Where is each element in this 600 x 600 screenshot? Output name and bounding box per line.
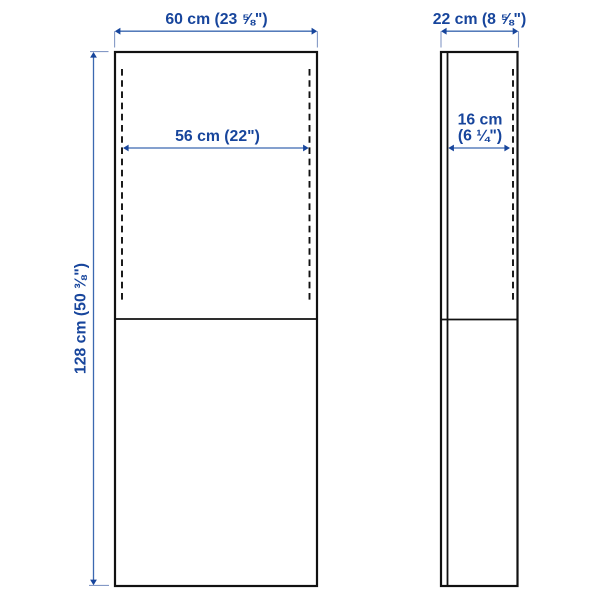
svg-text:(6 ¼"): (6 ¼") [458, 127, 502, 144]
svg-text:22 cm (8 ⅝"): 22 cm (8 ⅝") [433, 11, 527, 28]
svg-text:16 cm: 16 cm [458, 111, 503, 128]
svg-text:60 cm (23 ⅝"): 60 cm (23 ⅝") [165, 11, 267, 28]
svg-text:56 cm (22"): 56 cm (22") [175, 128, 260, 145]
svg-text:128 cm (50 ⅜"): 128 cm (50 ⅜") [73, 263, 90, 374]
